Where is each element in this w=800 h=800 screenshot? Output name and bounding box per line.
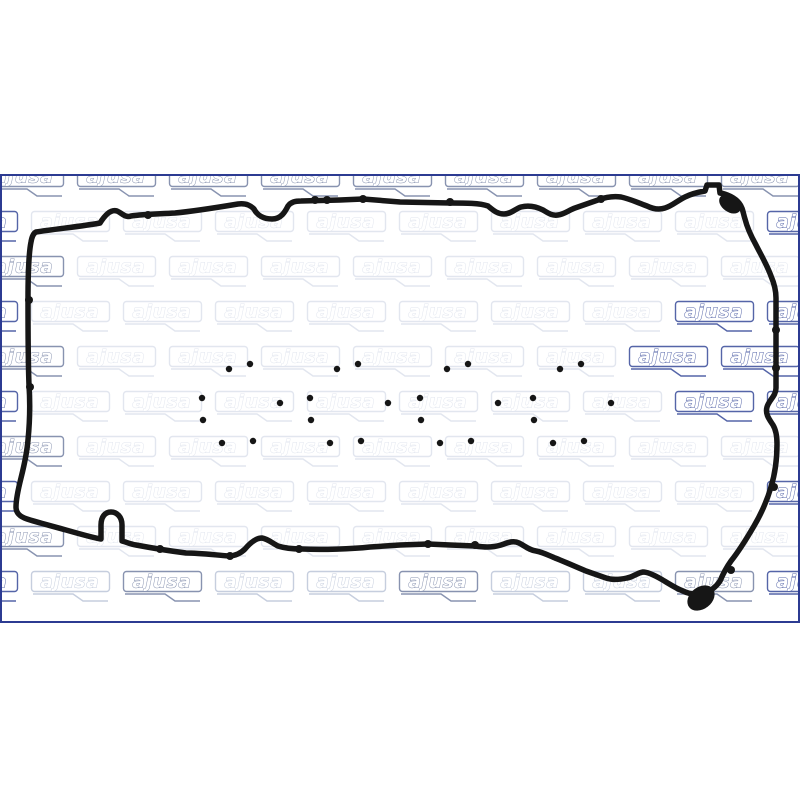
watermark-tile: ajusa [124,392,202,422]
watermark-brand-text: ajusa [777,212,799,233]
watermark-tile: ajusa [170,257,248,287]
watermark-tile: ajusa [676,302,754,332]
watermark-brand-text: ajusa [225,302,284,323]
watermark-brand-text: ajusa [225,212,284,233]
watermark-brand-text: ajusa [2,527,54,548]
watermark-brand-text: ajusa [731,437,790,458]
watermark-brand-text: ajusa [41,302,100,323]
watermark-tile: ajusa [768,572,799,602]
watermark-brand-text: ajusa [639,437,698,458]
watermark-brand-text: ajusa [501,302,560,323]
watermark-tile: ajusa [308,482,386,512]
watermark-brand-text: ajusa [363,437,422,458]
watermark-brand-text: ajusa [133,482,192,503]
watermark-tile: ajusa [722,257,799,287]
watermark-brand-text: ajusa [317,392,376,413]
watermark-tile: ajusa [584,482,662,512]
watermark-brand-text: ajusa [133,302,192,323]
watermark-brand-text: ajusa [501,572,560,593]
watermark-tile: ajusa [492,572,570,602]
watermark-tile: ajusa [262,176,340,196]
watermark-tile: ajusa [2,302,18,332]
watermark-tile: ajusa [446,437,524,467]
watermark-brand-text: ajusa [455,257,514,278]
watermark-tile: ajusa [722,437,799,467]
watermark-tile: ajusa [32,392,110,422]
watermark-tile: ajusa [308,392,386,422]
watermark-tile: ajusa [354,176,432,196]
watermark-brand-text: ajusa [317,302,376,323]
watermark-brand-text: ajusa [547,347,606,368]
watermark-brand-text: ajusa [593,212,652,233]
watermark-tile: ajusa [722,347,799,377]
watermark-tile: ajusa [124,572,202,602]
watermark-tile: ajusa [446,347,524,377]
watermark-brand-text: ajusa [87,437,146,458]
watermark-brand-text: ajusa [2,482,8,503]
watermark-tile: ajusa [170,437,248,467]
watermark-tile: ajusa [124,482,202,512]
watermark-tile: ajusa [216,392,294,422]
watermark-brand-text: ajusa [685,212,744,233]
watermark-brand-text: ajusa [2,572,8,593]
watermark-brand-text: ajusa [409,212,468,233]
watermark-tile: ajusa [170,347,248,377]
watermark-brand-text: ajusa [547,257,606,278]
watermark-brand-text: ajusa [731,257,790,278]
watermark-tile: ajusa [308,302,386,332]
watermark-tile: ajusa [78,257,156,287]
watermark-brand-text: ajusa [363,176,422,188]
watermark-tile: ajusa [400,392,478,422]
watermark-tile: ajusa [78,437,156,467]
watermark-tile: ajusa [354,437,432,467]
watermark-brand-text: ajusa [271,257,330,278]
watermark-brand-text: ajusa [317,212,376,233]
watermark-tile: ajusa [538,527,616,557]
watermark-brand-text: ajusa [777,392,799,413]
watermark-tile: ajusa [400,212,478,242]
watermark-brand-text: ajusa [593,392,652,413]
watermark-brand-text: ajusa [547,527,606,548]
watermark-tile: ajusa [354,527,432,557]
watermark-tile: ajusa [584,392,662,422]
watermark-tile: ajusa [768,212,799,242]
watermark-brand-text: ajusa [639,257,698,278]
watermark-brand-text: ajusa [501,482,560,503]
watermark-tile: ajusa [262,347,340,377]
watermark-brand-text: ajusa [455,347,514,368]
watermark-tile: ajusa [262,257,340,287]
watermark-brand-text: ajusa [777,302,799,323]
watermark-tile: ajusa [538,257,616,287]
watermark-tile: ajusa [78,176,156,196]
watermark-brand-text: ajusa [41,392,100,413]
watermark-tile: ajusa [78,347,156,377]
watermark-brand-text: ajusa [87,257,146,278]
watermark-tile: ajusa [2,347,64,377]
watermark-tile: ajusa [768,302,799,332]
watermark-brand-text: ajusa [87,347,146,368]
watermark-tile: ajusa [446,257,524,287]
watermark-brand-text: ajusa [409,482,468,503]
watermark-brand-text: ajusa [777,572,799,593]
watermark-brand-text: ajusa [777,482,799,503]
watermark-brand-text: ajusa [317,572,376,593]
watermark-tile: ajusa [170,176,248,196]
watermark-tile: ajusa [492,482,570,512]
watermark-brand-text: ajusa [179,257,238,278]
watermark-tile: ajusa [722,176,799,196]
watermark-tile: ajusa [216,482,294,512]
watermark-tile: ajusa [722,527,799,557]
watermark-brand-text: ajusa [225,572,284,593]
watermark-brand-text: ajusa [41,482,100,503]
watermark-tile: ajusa [400,482,478,512]
watermark-brand-text: ajusa [731,527,790,548]
watermark-tile: ajusa [124,302,202,332]
watermark-brand-text: ajusa [179,437,238,458]
watermark-brand-text: ajusa [731,176,790,188]
gasket-bolt-marks [25,195,780,574]
watermark-brand-text: ajusa [685,482,744,503]
watermark-brand-text: ajusa [639,527,698,548]
page-background: ajusaajusaajusaajusaajusaajusaajusaajusa… [0,0,800,800]
watermark-tile: ajusa [308,572,386,602]
watermark-brand-text: ajusa [731,347,790,368]
watermark-tile: ajusa [492,392,570,422]
watermark-tile: ajusa [630,527,708,557]
watermark-tile: ajusa [2,176,64,196]
watermark-brand-text: ajusa [455,437,514,458]
watermark-tile: ajusa [400,302,478,332]
watermark-tile: ajusa [676,392,754,422]
watermark-brand-text: ajusa [133,572,192,593]
watermark-brand-text: ajusa [271,176,330,188]
watermark-brand-text: ajusa [271,437,330,458]
watermark-brand-text: ajusa [225,392,284,413]
watermark-brand-text: ajusa [2,212,8,233]
watermark-brand-text: ajusa [2,392,8,413]
watermark-brand-text: ajusa [639,347,698,368]
watermark-tile: ajusa [630,257,708,287]
watermark-brand-text: ajusa [225,482,284,503]
watermark-tile: ajusa [538,437,616,467]
watermark-tile: ajusa [630,437,708,467]
watermark-brand-text: ajusa [271,347,330,368]
watermark-tile: ajusa [538,347,616,377]
watermark-tile: ajusa [676,482,754,512]
watermark-brand-text: ajusa [363,257,422,278]
watermark-tile: ajusa [32,302,110,332]
watermark-brand-text: ajusa [2,302,8,323]
watermark-brand-text: ajusa [593,482,652,503]
watermark-brand-text: ajusa [179,176,238,188]
watermark-brand-text: ajusa [317,482,376,503]
watermark-tile: ajusa [2,527,64,557]
watermark-tile: ajusa [630,347,708,377]
watermark-tile: ajusa [2,437,64,467]
watermark-brand-text: ajusa [133,392,192,413]
watermark-tile: ajusa [216,302,294,332]
watermark-tile: ajusa [32,572,110,602]
watermark-brand-text: ajusa [547,176,606,188]
watermark-brand-text: ajusa [593,302,652,323]
watermark-brand-text: ajusa [409,572,468,593]
watermark-tile: ajusa [216,572,294,602]
watermark-tile: ajusa [32,482,110,512]
watermark-tile: ajusa [354,347,432,377]
watermark-brand-text: ajusa [179,347,238,368]
watermark-tile: ajusa [584,302,662,332]
watermark-brand-text: ajusa [547,437,606,458]
watermark-brand-text: ajusa [409,392,468,413]
watermark-tile: ajusa [538,176,616,196]
watermark-tile: ajusa [354,257,432,287]
watermark-brand-text: ajusa [685,392,744,413]
watermark-brand-text: ajusa [639,176,698,188]
watermark-brand-text: ajusa [363,347,422,368]
watermark-tile: ajusa [446,176,524,196]
watermark-tile: ajusa [2,572,18,602]
watermark-brand-text: ajusa [685,302,744,323]
watermark-tile: ajusa [2,257,64,287]
watermark-tile: ajusa [2,212,18,242]
watermark-brand-text: ajusa [87,176,146,188]
product-image: ajusaajusaajusaajusaajusaajusaajusaajusa… [0,174,800,623]
watermark-brand-text: ajusa [409,302,468,323]
watermark-tile: ajusa [2,392,18,422]
watermark-tile: ajusa [584,212,662,242]
product-photo-svg: ajusaajusaajusaajusaajusaajusaajusaajusa… [2,176,798,621]
watermark-brand-text: ajusa [41,572,100,593]
watermark-tile: ajusa [308,212,386,242]
watermark-brand-text: ajusa [179,527,238,548]
watermark-brand-text: ajusa [501,392,560,413]
watermark-brand-text: ajusa [455,176,514,188]
watermark-brand-text: ajusa [2,176,54,188]
watermark-tile: ajusa [492,302,570,332]
watermark-tile: ajusa [78,527,156,557]
watermark-tile: ajusa [400,572,478,602]
